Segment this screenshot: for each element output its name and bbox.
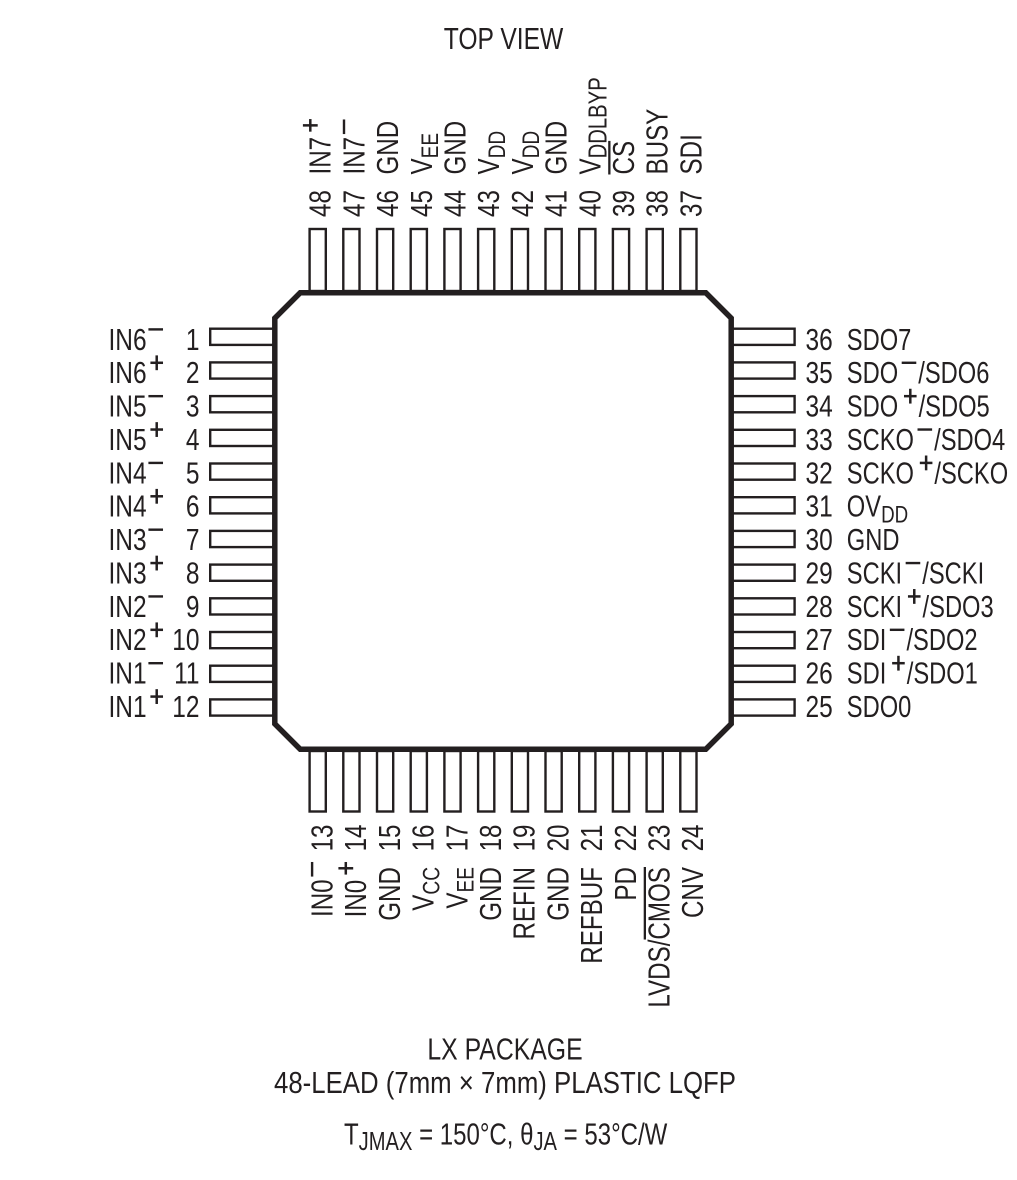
svg-text:IN5: IN5: [109, 389, 147, 423]
svg-text:6: 6: [186, 489, 200, 523]
svg-text:25: 25: [806, 689, 833, 723]
svg-text:7: 7: [186, 522, 200, 556]
svg-text:SDO/SDO5: SDO/SDO5: [847, 388, 990, 423]
svg-text:32: 32: [806, 456, 833, 490]
svg-text:LX PACKAGE: LX PACKAGE: [427, 1032, 582, 1066]
svg-text:8: 8: [186, 556, 200, 590]
svg-text:34: 34: [806, 389, 833, 423]
svg-text:SDO0: SDO0: [847, 689, 912, 724]
svg-text:10: 10: [172, 622, 199, 656]
svg-text:SDI/SDO1: SDI/SDO1: [847, 656, 978, 691]
svg-text:IN1: IN1: [109, 689, 147, 723]
svg-text:GND20: GND20: [541, 825, 576, 921]
svg-text:12: 12: [172, 689, 199, 723]
svg-text:48-LEAD (7mm × 7mm) PLASTIC LQ: 48-LEAD (7mm × 7mm) PLASTIC LQFP: [274, 1066, 736, 1101]
svg-text:IN4: IN4: [109, 489, 147, 523]
svg-text:30: 30: [806, 522, 833, 556]
svg-text:35: 35: [806, 355, 833, 389]
svg-text:41GND: 41GND: [539, 121, 574, 217]
svg-text:REFIN19: REFIN19: [507, 825, 542, 940]
svg-text:SDO/SDO6: SDO/SDO6: [847, 355, 990, 390]
svg-text:5: 5: [186, 456, 200, 490]
svg-text:SDI/SDO2: SDI/SDO2: [847, 622, 978, 657]
svg-text:IN6: IN6: [109, 355, 147, 389]
svg-text:IN2: IN2: [109, 589, 147, 623]
svg-text:33: 33: [806, 422, 833, 456]
svg-text:26: 26: [806, 656, 833, 690]
svg-text:LVDS/CMOS23: LVDS/CMOS23: [642, 825, 677, 1008]
svg-text:36: 36: [806, 322, 833, 356]
svg-text:2: 2: [186, 355, 200, 389]
svg-text:IN4: IN4: [109, 456, 147, 490]
svg-text:CNV24: CNV24: [675, 825, 710, 919]
svg-text:44GND: 44GND: [438, 121, 473, 217]
svg-text:IN3: IN3: [109, 522, 147, 556]
svg-text:9: 9: [186, 589, 200, 623]
svg-text:46GND: 46GND: [370, 121, 405, 217]
svg-text:IN2: IN2: [109, 622, 147, 656]
svg-text:SDO7: SDO7: [847, 322, 912, 357]
svg-text:38BUSY: 38BUSY: [640, 109, 675, 217]
svg-text:3: 3: [186, 389, 200, 423]
svg-text:1: 1: [186, 322, 200, 356]
svg-text:GND: GND: [847, 522, 900, 557]
svg-text:IN5: IN5: [109, 422, 147, 456]
svg-text:4: 4: [186, 422, 200, 456]
svg-text:28: 28: [806, 589, 833, 623]
svg-text:IN3: IN3: [109, 556, 147, 590]
svg-text:IN1: IN1: [109, 656, 147, 690]
svg-text:REFBUF21: REFBUF21: [574, 825, 609, 964]
svg-text:29: 29: [806, 556, 833, 590]
svg-text:GND15: GND15: [372, 825, 407, 921]
svg-text:31: 31: [806, 489, 833, 523]
svg-text:11: 11: [174, 656, 199, 690]
svg-text:27: 27: [806, 622, 833, 656]
svg-text:TOP VIEW: TOP VIEW: [444, 21, 564, 55]
svg-text:IN6: IN6: [109, 322, 147, 356]
svg-text:GND18: GND18: [473, 825, 508, 921]
